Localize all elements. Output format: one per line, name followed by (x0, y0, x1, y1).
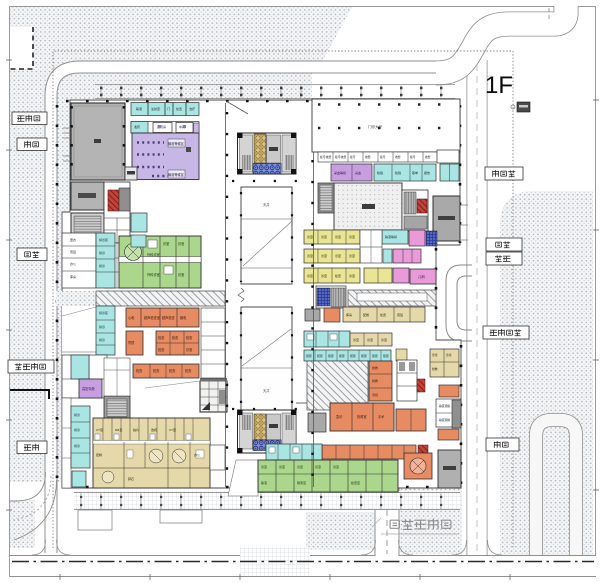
svg-text:抢救室: 抢救室 (357, 414, 367, 419)
svg-text:治疗: 治疗 (189, 106, 195, 111)
svg-text:候诊区: 候诊区 (99, 237, 108, 242)
svg-text:留观: 留观 (361, 354, 367, 358)
svg-text:诊室: 诊室 (335, 234, 341, 239)
svg-text:超声检查室: 超声检查室 (144, 315, 160, 320)
svg-text:诊室: 诊室 (333, 464, 339, 469)
svg-text:收费: 收费 (395, 155, 401, 159)
svg-text:抢救: 抢救 (432, 367, 438, 371)
svg-text:检查: 检查 (186, 335, 193, 340)
svg-text:处置: 处置 (380, 312, 386, 317)
svg-text:挂号: 挂号 (350, 155, 356, 159)
svg-text:脑电: 脑电 (180, 315, 187, 320)
svg-text:控制: 控制 (96, 452, 102, 457)
svg-text:诊室: 诊室 (307, 253, 313, 258)
svg-text:发药: 发药 (134, 124, 140, 129)
svg-text:库房: 库房 (346, 312, 352, 317)
svg-text:诊室: 诊室 (307, 273, 313, 278)
svg-text:留观: 留观 (317, 354, 323, 358)
svg-text:候诊: 候诊 (99, 324, 105, 329)
svg-text:诊室: 诊室 (178, 241, 184, 246)
svg-text:诊室: 诊室 (432, 353, 438, 357)
svg-text:拍片: 拍片 (133, 427, 139, 432)
svg-text:诊室: 诊室 (315, 464, 321, 469)
svg-text:检查: 检查 (158, 347, 165, 352)
svg-text:门: 门 (167, 106, 170, 111)
svg-text:办公: 办公 (70, 261, 76, 266)
svg-text:诊室: 诊室 (321, 273, 327, 278)
svg-text:手术: 手术 (378, 414, 385, 419)
svg-text:天井: 天井 (263, 202, 269, 207)
svg-text:候诊: 候诊 (74, 443, 80, 448)
svg-text:收费: 收费 (365, 155, 371, 159)
svg-text:检查: 检查 (153, 368, 160, 373)
svg-text:胃镜: 胃镜 (128, 340, 135, 345)
svg-text:1F: 1F (485, 72, 513, 99)
svg-text:隔离室: 隔离室 (297, 480, 306, 485)
svg-text:输液等候区: 输液等候区 (168, 172, 185, 177)
svg-text:天井: 天井 (263, 388, 269, 393)
svg-text:检查: 检查 (158, 335, 165, 340)
svg-text:留观: 留观 (339, 354, 345, 358)
svg-text:收费: 收费 (425, 155, 431, 159)
svg-text:诊室: 诊室 (163, 241, 169, 246)
svg-text:挂号收费: 挂号收费 (335, 155, 346, 159)
svg-text:配餐: 配餐 (363, 312, 369, 317)
svg-text:挂号收费: 挂号收费 (320, 155, 331, 159)
svg-text:急诊: 急诊 (336, 414, 343, 419)
svg-text:检查: 检查 (169, 368, 176, 373)
svg-text:采血等候: 采血等候 (334, 170, 346, 175)
svg-text:诊室: 诊室 (446, 353, 452, 357)
svg-text:更衣: 更衣 (70, 237, 76, 242)
svg-text:输液等候: 输液等候 (385, 234, 397, 239)
svg-text:留观: 留观 (372, 354, 378, 358)
svg-text:值班: 值班 (70, 249, 76, 254)
svg-text:诊室: 诊室 (349, 234, 355, 239)
svg-text:诊室: 诊室 (367, 337, 373, 342)
svg-text:库房: 库房 (70, 274, 76, 279)
svg-text:采血: 采血 (355, 170, 361, 175)
svg-text:检查室: 检查室 (351, 480, 360, 485)
svg-text:DR室: DR室 (115, 427, 122, 432)
svg-text:检验: 检验 (395, 170, 401, 175)
svg-text:取单: 取单 (412, 170, 418, 175)
svg-text:抢救: 抢救 (372, 365, 378, 370)
svg-text:高压氧舱: 高压氧舱 (82, 386, 96, 391)
svg-text:诊室: 诊室 (186, 347, 192, 352)
svg-text:门诊大厅: 门诊大厅 (368, 124, 383, 129)
svg-text:外科诊室: 外科诊室 (147, 272, 160, 277)
svg-text:儿科: 儿科 (418, 274, 425, 279)
svg-text:留观: 留观 (383, 354, 389, 358)
svg-text:诊室: 诊室 (321, 253, 327, 258)
svg-text:候诊: 候诊 (99, 337, 105, 342)
svg-text:CT室: CT室 (169, 427, 176, 432)
svg-text:检查: 检查 (335, 273, 341, 278)
svg-text:诊室: 诊室 (307, 234, 313, 239)
svg-text:报告: 报告 (424, 170, 430, 175)
svg-text:候诊: 候诊 (99, 250, 105, 255)
svg-text:诊室: 诊室 (335, 253, 341, 258)
svg-text:诊室: 诊室 (349, 273, 355, 278)
svg-text:注射室: 注射室 (151, 106, 160, 111)
svg-text:留观: 留观 (306, 354, 312, 358)
svg-text:碎石: 碎石 (128, 476, 134, 481)
svg-text:处置: 处置 (176, 106, 182, 111)
svg-text:检查: 检查 (172, 335, 179, 340)
svg-text:候诊: 候诊 (99, 263, 105, 268)
svg-text:抢救: 抢救 (372, 378, 378, 383)
svg-text:外科诊室: 外科诊室 (147, 252, 160, 257)
svg-text:候诊: 候诊 (74, 427, 80, 432)
svg-text:诊室: 诊室 (381, 337, 387, 342)
svg-text:诊室: 诊室 (178, 272, 184, 277)
svg-text:诊室: 诊室 (349, 253, 355, 258)
svg-text:输液观察: 输液观察 (439, 418, 450, 422)
svg-text:诊室: 诊室 (297, 464, 303, 469)
svg-text:检查: 检查 (136, 368, 143, 373)
svg-text:诊室: 诊室 (261, 464, 267, 469)
svg-text:透视: 透视 (151, 427, 157, 432)
svg-text:清创: 清创 (372, 392, 378, 397)
svg-text:输液: 输液 (261, 480, 267, 485)
svg-text:输液: 输液 (136, 106, 142, 111)
svg-text:CT室: CT室 (96, 427, 103, 432)
svg-text:办公: 办公 (194, 452, 200, 457)
svg-text:留观: 留观 (350, 354, 356, 358)
svg-text:挂号: 挂号 (410, 155, 416, 159)
svg-text:检查: 检查 (185, 368, 192, 373)
svg-text:输液等候区: 输液等候区 (168, 141, 185, 146)
svg-text:检验: 检验 (377, 170, 383, 175)
svg-text:输液观察: 输液观察 (439, 404, 450, 408)
svg-text:诊室: 诊室 (321, 234, 327, 239)
svg-text:挂号: 挂号 (380, 155, 386, 159)
svg-text:心电: 心电 (128, 315, 135, 320)
svg-text:超声检查: 超声检查 (162, 315, 176, 320)
svg-text:诊室: 诊室 (353, 337, 359, 342)
svg-text:候诊区: 候诊区 (99, 310, 108, 315)
svg-text:候诊: 候诊 (74, 412, 80, 417)
svg-text:值班: 值班 (397, 312, 403, 317)
svg-text:诊室: 诊室 (279, 464, 285, 469)
svg-text:留观: 留观 (328, 354, 334, 358)
